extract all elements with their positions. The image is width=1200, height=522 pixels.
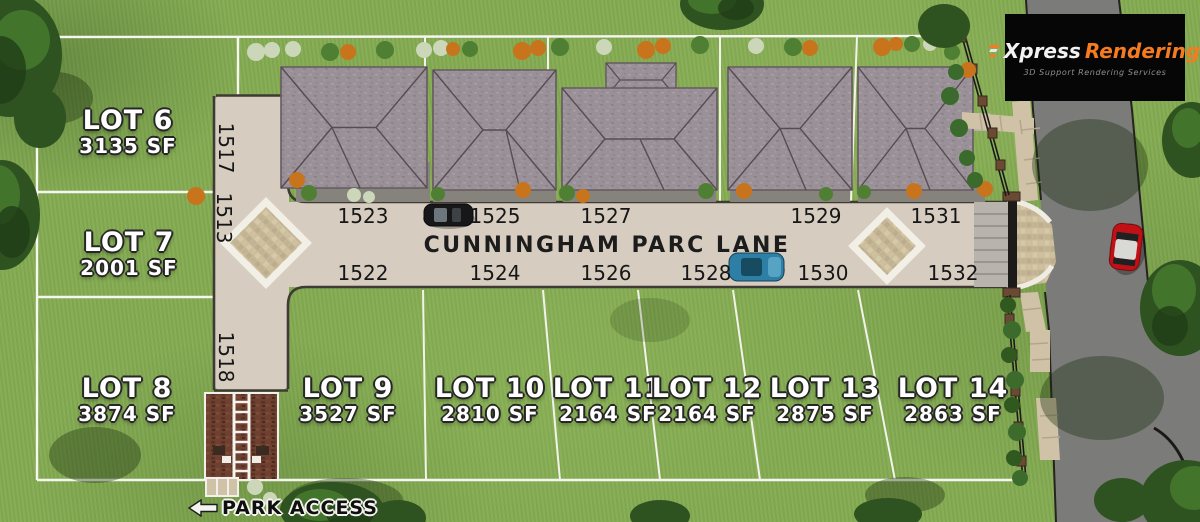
house-1523 bbox=[281, 67, 427, 188]
site-plan: LOT 6 3135 SF LOT 7 2001 SF LOT 8 3874 S… bbox=[0, 0, 1200, 522]
entry-gate bbox=[1008, 196, 1017, 293]
house-1529 bbox=[728, 67, 852, 190]
speed-lines-icon bbox=[990, 45, 999, 57]
logo-wordmark: XpressRendering bbox=[990, 39, 1200, 63]
houses bbox=[281, 63, 973, 190]
park-structure bbox=[205, 393, 278, 496]
logo-xpressrendering: XpressRendering 3D Support Rendering Ser… bbox=[1005, 14, 1185, 101]
black-car bbox=[423, 204, 475, 229]
house-1525 bbox=[433, 70, 556, 190]
perimeter-fence-lower bbox=[1000, 295, 1028, 486]
park-entry-pad bbox=[206, 478, 238, 496]
blue-car bbox=[727, 253, 785, 281]
logo-tagline: 3D Support Rendering Services bbox=[1024, 68, 1167, 77]
house-1527 bbox=[562, 63, 717, 190]
